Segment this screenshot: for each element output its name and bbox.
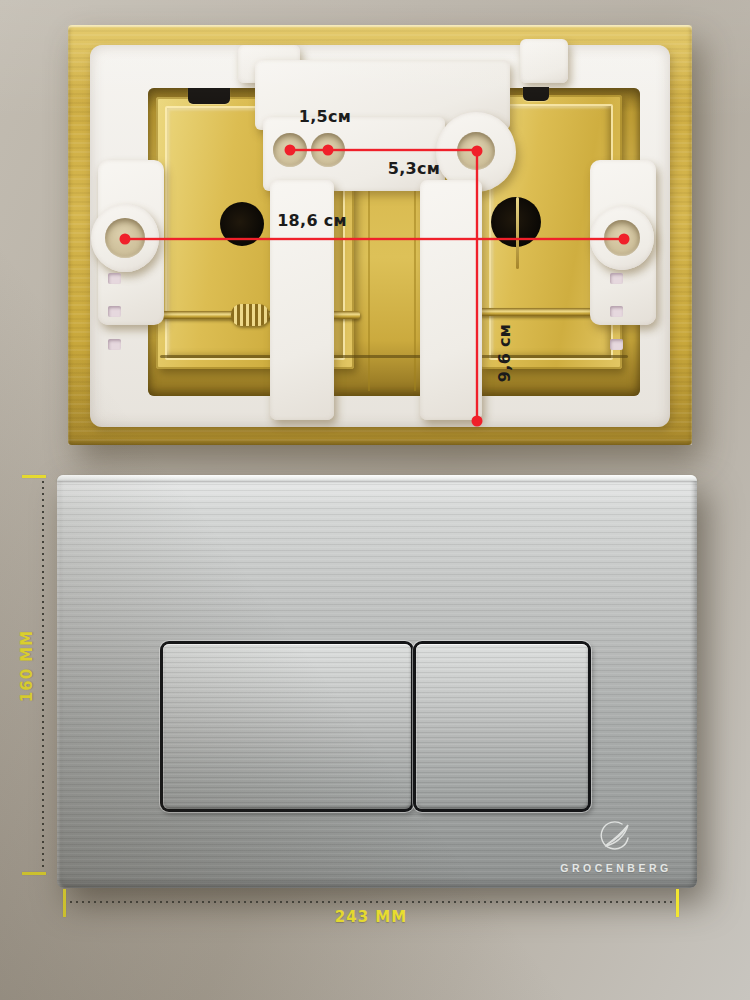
dimension-label-vertical-offset: 9,6 см [495, 324, 514, 382]
brand-logo: GROCENBERG [551, 820, 681, 874]
dimension-label-mount-spacing: 18,6 см [277, 211, 347, 230]
retainer-clip [188, 88, 230, 104]
dimension-point [323, 145, 334, 156]
dimension-point [285, 145, 296, 156]
dimension-line-hole-spacing [290, 149, 477, 151]
mechanism-seam [160, 355, 628, 358]
frame-clip-tab [520, 39, 568, 83]
rail-clip [108, 339, 121, 350]
width-dimension-label: 243 MM [335, 908, 407, 926]
right-flush-button [413, 641, 591, 812]
coil-spring [231, 304, 269, 326]
retainer-clip [523, 87, 549, 101]
height-dimension-label: 160 MM [18, 630, 36, 702]
height-dimension-line [42, 481, 44, 871]
height-tick-top [22, 475, 46, 478]
rail-clip [108, 273, 121, 284]
product-photo-scene: 1,5см 5,3см 18,6 см 9,6 см GROCENBERG 16… [0, 0, 750, 1000]
rail-clip [108, 306, 121, 317]
dimension-line-mount-spacing [125, 238, 624, 240]
width-tick-right [676, 889, 679, 917]
dimension-label-small-hole-gap: 1,5см [299, 107, 351, 126]
width-tick-left [63, 889, 66, 917]
dimension-point [472, 146, 483, 157]
bracket-leg-right [420, 180, 482, 420]
width-dimension-line [70, 901, 672, 903]
height-tick-bottom [22, 872, 46, 875]
plate-top-edge [57, 475, 697, 481]
dimension-label-hole-spacing: 5,3см [388, 159, 440, 178]
rail-clip [610, 306, 623, 317]
right-flush-button-face [416, 644, 588, 809]
flush-plate-photo: GROCENBERG [57, 475, 697, 888]
rail-clip [610, 339, 623, 350]
brass-pin [516, 197, 519, 269]
left-flush-button-face [163, 644, 411, 809]
left-flush-button [160, 641, 414, 812]
dimension-point [619, 234, 630, 245]
brand-name: GROCENBERG [551, 862, 681, 874]
grocenberg-monogram-icon [597, 820, 635, 856]
back-frame-photo: 1,5см 5,3см 18,6 см 9,6 см [68, 25, 692, 445]
dimension-point [472, 416, 483, 427]
dimension-point [120, 234, 131, 245]
rail-clip [610, 273, 623, 284]
dimension-line-vertical [476, 151, 478, 422]
